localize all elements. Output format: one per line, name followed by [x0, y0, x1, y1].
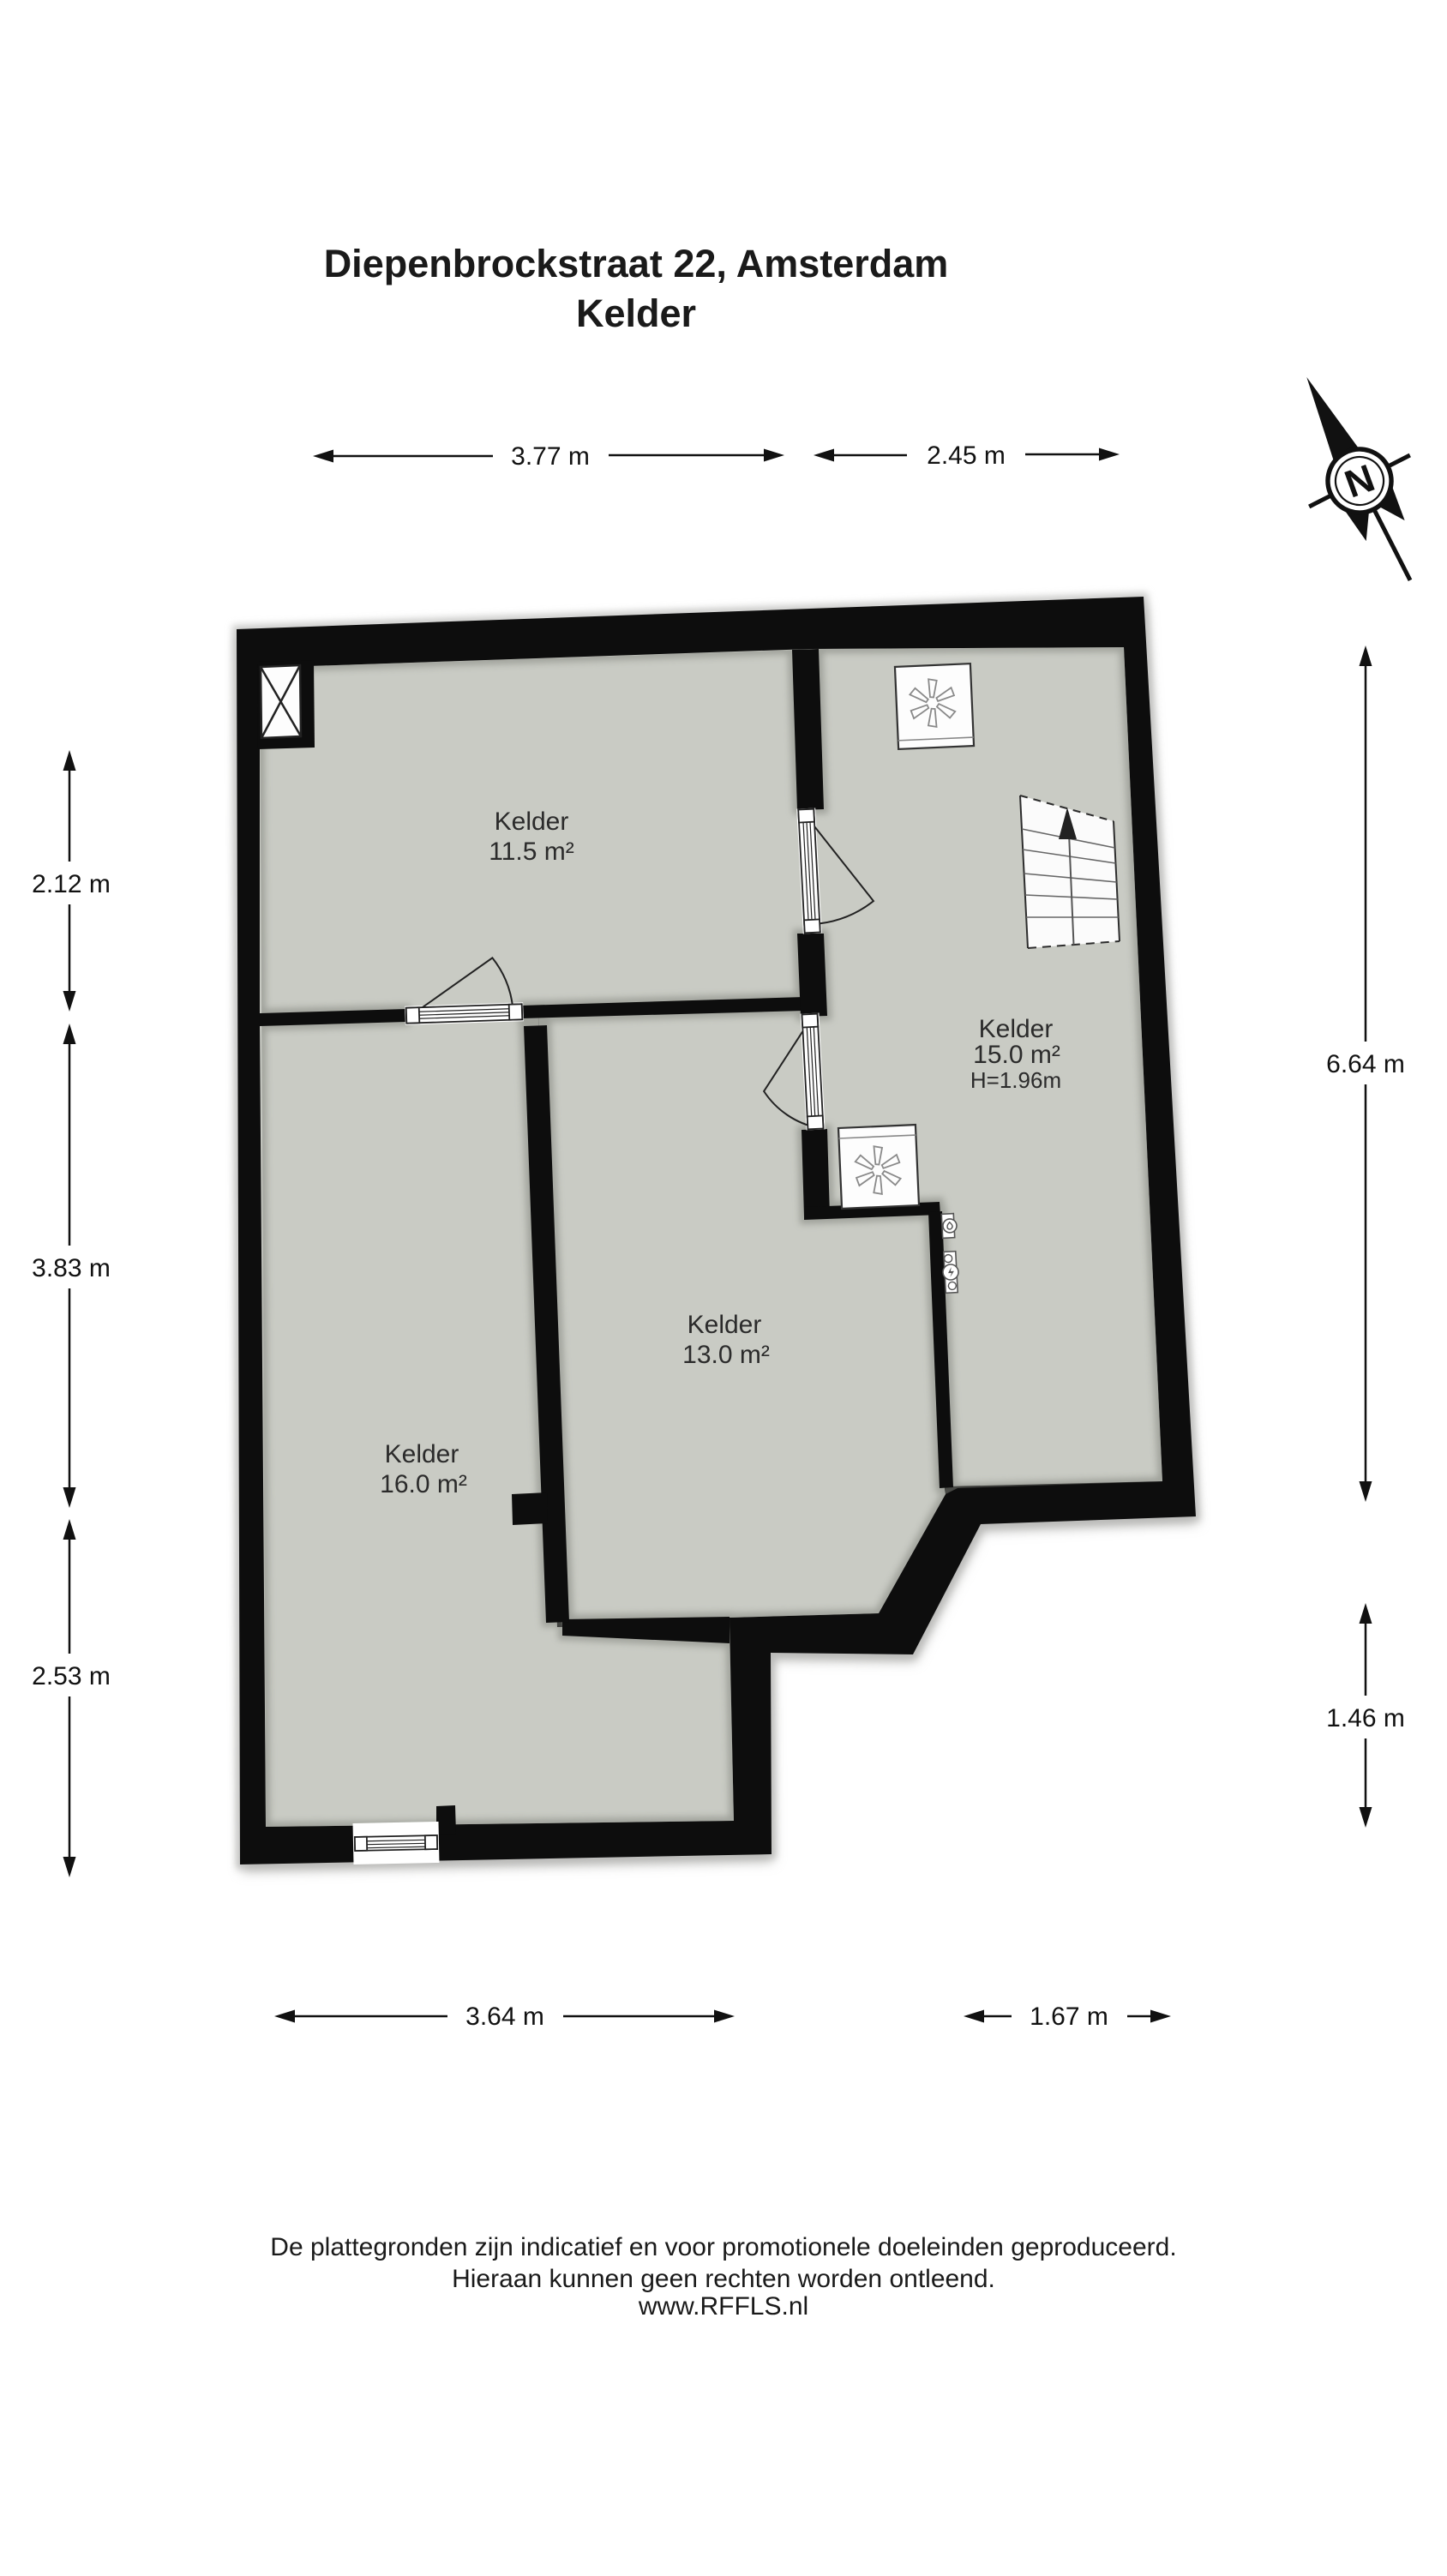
svg-text:Kelder: Kelder — [495, 808, 569, 836]
svg-text:2.45 m: 2.45 m — [927, 441, 1006, 470]
svg-text:3.64 m: 3.64 m — [465, 2003, 544, 2031]
svg-text:1.46 m: 1.46 m — [1326, 1704, 1405, 1732]
svg-text:11.5 m²: 11.5 m² — [489, 838, 573, 866]
svg-text:Hieraan kunnen geen rechten wo: Hieraan kunnen geen rechten worden ontle… — [452, 2265, 995, 2293]
svg-text:6.64 m: 6.64 m — [1326, 1050, 1405, 1078]
svg-text:Kelder: Kelder — [687, 1311, 762, 1339]
svg-text:2.12 m: 2.12 m — [32, 870, 111, 898]
svg-text:Kelder: Kelder — [576, 291, 696, 335]
svg-text:16.0 m²: 16.0 m² — [380, 1470, 467, 1498]
svg-text:www.RFFLS.nl: www.RFFLS.nl — [638, 2292, 808, 2321]
svg-text:3.77 m: 3.77 m — [511, 442, 590, 471]
svg-text:2.53 m: 2.53 m — [32, 1662, 111, 1690]
svg-text:Diepenbrockstraat 22, Amsterda: Diepenbrockstraat 22, Amsterdam — [324, 242, 949, 285]
svg-text:Kelder: Kelder — [385, 1440, 459, 1468]
svg-text:3.83 m: 3.83 m — [32, 1254, 111, 1282]
svg-text:H=1.96m: H=1.96m — [970, 1067, 1061, 1093]
svg-text:Kelder: Kelder — [979, 1015, 1054, 1043]
svg-text:13.0 m²: 13.0 m² — [682, 1341, 770, 1369]
svg-text:15.0 m²: 15.0 m² — [973, 1041, 1060, 1069]
svg-text:1.67 m: 1.67 m — [1030, 2003, 1108, 2031]
svg-text:De plattegronden zijn indicati: De plattegronden zijn indicatief en voor… — [270, 2233, 1176, 2261]
